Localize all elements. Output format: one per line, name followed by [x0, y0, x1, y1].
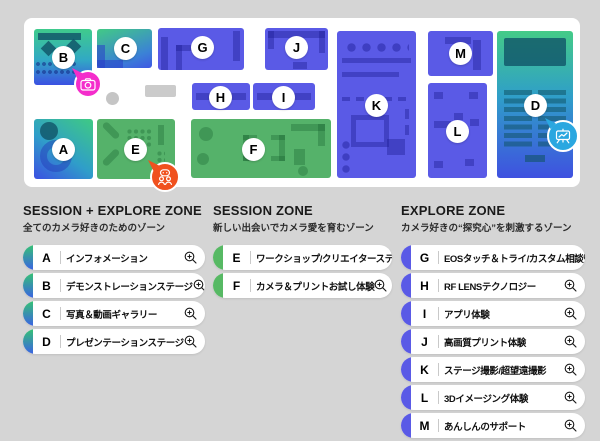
zone-label: RF LENSテクノロジー: [444, 279, 536, 293]
decor-shape: [271, 135, 285, 140]
legend-subtitle: 新しい出会いでカメラ愛を育むゾーン: [213, 223, 392, 234]
decor-shape: [525, 155, 545, 162]
zone-i-letter-badge: I: [272, 86, 295, 109]
divider: [438, 335, 439, 348]
map-structure-rect: [145, 85, 176, 97]
decor-shape: [465, 159, 474, 166]
decor-shape: [97, 60, 123, 68]
zoom-in-icon[interactable]: [564, 335, 577, 348]
divider: [60, 251, 61, 264]
decor-shape: [293, 62, 307, 69]
legend-column-session: SESSION ZONE 新しい出会いでカメラ愛を育むゾーン E ワークショップ…: [213, 204, 392, 301]
legend-item-b[interactable]: B デモンストレーションステージ: [23, 273, 205, 298]
decor-shape: [318, 124, 325, 146]
zoom-in-icon[interactable]: [184, 307, 197, 320]
legend-item-k[interactable]: K ステージ撮影/超望遠撮影: [401, 357, 585, 382]
divider: [438, 419, 439, 432]
zone-color-cap: [23, 329, 33, 354]
zone-k-letter-badge: K: [365, 94, 388, 117]
zone-color-cap: [401, 273, 411, 298]
presentation-marker-icon: [547, 120, 579, 152]
legend-title: SESSION ZONE: [213, 204, 392, 218]
decor-shape: [158, 125, 164, 145]
decor-shape: [342, 141, 352, 177]
zoom-in-icon[interactable]: [564, 279, 577, 292]
decor-shape: [469, 92, 478, 99]
decor-shape: [40, 122, 58, 140]
legend-item-f[interactable]: F カメラ＆プリントお試し体験: [213, 273, 392, 298]
zoom-in-icon[interactable]: [564, 391, 577, 404]
divider: [438, 307, 439, 320]
zone-m-letter-badge: M: [449, 42, 472, 65]
zone-label: ステージ撮影/超望遠撮影: [444, 363, 546, 377]
decor-shape: [319, 31, 325, 53]
zone-h-letter-badge: H: [209, 86, 232, 109]
zone-label: プレゼンテーションステージ: [66, 335, 184, 349]
zone-letter: F: [228, 279, 245, 293]
zone-e-letter-badge: E: [124, 138, 147, 161]
decor-shape: [271, 156, 285, 161]
legend-item-g[interactable]: G EOSタッチ＆トライ/カスタム相談: [401, 245, 585, 270]
zoom-in-icon[interactable]: [193, 279, 205, 292]
camera-marker-icon: [74, 70, 102, 98]
zoom-in-icon[interactable]: [184, 335, 197, 348]
divider: [438, 391, 439, 404]
zone-letter: C: [38, 307, 55, 321]
zone-letter: K: [416, 363, 433, 377]
map-structure-circle: [106, 92, 119, 105]
zoom-in-icon[interactable]: [564, 307, 577, 320]
zone-color-cap: [23, 273, 33, 298]
legend-item-a[interactable]: A インフォメーション: [23, 245, 205, 270]
zone-c-letter-badge: C: [114, 37, 137, 60]
visitors-marker-icon: [150, 162, 180, 192]
divider: [250, 251, 251, 264]
legend-item-h[interactable]: H RF LENSテクノロジー: [401, 273, 585, 298]
zone-letter: I: [416, 307, 433, 321]
decor-shape: [470, 119, 479, 126]
zone-a-letter-badge: A: [52, 138, 75, 161]
zone-d-letter-badge: D: [524, 94, 547, 117]
divider: [60, 307, 61, 320]
zone-letter: L: [416, 391, 433, 405]
divider: [250, 279, 251, 292]
decor-shape: [387, 139, 405, 155]
zone-g-letter-badge: G: [191, 36, 214, 59]
zone-color-cap: [23, 245, 33, 270]
zoom-in-icon[interactable]: [374, 279, 387, 292]
zone-letter: E: [228, 251, 245, 265]
presentation-board-icon: [554, 128, 572, 144]
zone-label: EOSタッチ＆トライ/カスタム相談: [444, 251, 583, 265]
zone-letter: D: [38, 335, 55, 349]
zone-j-letter-badge: J: [285, 36, 308, 59]
decor-shape: [342, 58, 411, 63]
legend-title: SESSION + EXPLORE ZONE: [23, 204, 205, 218]
zone-color-cap: [23, 301, 33, 326]
decor-shape: [298, 166, 308, 176]
zone-label: インフォメーション: [66, 251, 147, 265]
decor-shape: [176, 45, 182, 70]
legend-item-c[interactable]: C 写真＆動画ギャラリー: [23, 301, 205, 326]
zone-label: 高画質プリント体験: [444, 335, 526, 349]
legend-column-explore: EXPLORE ZONE カメラ好きの“探究心”を刺激するゾーン G EOSタッ…: [401, 204, 585, 441]
decor-shape: [347, 43, 409, 53]
camera-icon: [80, 77, 96, 91]
zone-color-cap: [401, 357, 411, 382]
decor-shape: [473, 40, 481, 70]
zone-letter: B: [38, 279, 55, 293]
legend-title: EXPLORE ZONE: [401, 204, 585, 218]
divider: [60, 335, 61, 348]
divider: [60, 279, 61, 292]
zone-letter: J: [416, 335, 433, 349]
decor-shape: [434, 92, 443, 99]
zone-color-cap: [401, 413, 411, 438]
zone-label: 写真＆動画ギャラリー: [66, 307, 157, 321]
legend-subtitle: カメラ好きの“探究心”を刺激するゾーン: [401, 223, 585, 234]
zone-color-cap: [401, 329, 411, 354]
decor-shape: [161, 37, 168, 70]
legend-column-session-explore: SESSION + EXPLORE ZONE 全てのカメラ好きのためのゾーン A…: [23, 204, 205, 357]
zone-color-cap: [401, 245, 411, 270]
legend-item-l[interactable]: L 3Dイメージング体験: [401, 385, 585, 410]
zone-b-letter-badge: B: [52, 46, 75, 69]
decor-stage: [504, 38, 566, 66]
zone-letter: M: [416, 419, 433, 433]
zone-l-letter-badge: L: [446, 120, 469, 143]
zoom-in-icon[interactable]: [184, 251, 197, 264]
floor-map-panel: A B C D E F G H I J K L M: [24, 18, 580, 187]
divider: [438, 363, 439, 376]
zone-color-cap: [213, 273, 223, 298]
decor-shape: [101, 148, 120, 167]
decor-shape: [268, 31, 274, 49]
decor-shape: [197, 153, 209, 165]
decor-shape: [454, 113, 463, 120]
decor-shape: [405, 125, 409, 135]
divider: [438, 279, 439, 292]
decor-shape: [351, 115, 389, 147]
zone-color-cap: [213, 245, 223, 270]
zone-f-letter-badge: F: [242, 138, 265, 161]
legend-item-e[interactable]: E ワークショップ/クリエイターステージ: [213, 245, 392, 270]
decor-shape: [294, 149, 305, 165]
decor-shape: [233, 31, 240, 61]
event-map-page: A B C D E F G H I J K L M: [0, 0, 600, 437]
zone-letter: H: [416, 279, 433, 293]
legend-item-i[interactable]: I アプリ体験: [401, 301, 585, 326]
decor-shape: [199, 127, 213, 141]
zone-label: アプリ体験: [444, 307, 490, 321]
decor-shape: [101, 121, 120, 140]
zoom-in-icon[interactable]: [583, 251, 585, 264]
zone-label: ワークショップ/クリエイターステージ: [256, 251, 392, 265]
legend-subtitle: 全てのカメラ好きのためのゾーン: [23, 223, 205, 234]
decor-shape: [342, 72, 399, 77]
decor-shape: [434, 161, 443, 168]
decor-shape: [405, 109, 409, 119]
divider: [438, 251, 439, 264]
zone-label: あんしんのサポート: [444, 419, 526, 433]
zone-letter: A: [38, 251, 55, 265]
zone-color-cap: [401, 385, 411, 410]
zone-color-cap: [401, 301, 411, 326]
legend-item-m[interactable]: M あんしんのサポート: [401, 413, 585, 438]
visitors-icon: [156, 169, 174, 185]
zoom-in-icon[interactable]: [564, 419, 577, 432]
zone-label: デモンストレーションステージ: [66, 279, 193, 293]
zone-label: 3Dイメージング体験: [444, 391, 528, 405]
zoom-in-icon[interactable]: [564, 363, 577, 376]
legend-item-d[interactable]: D プレゼンテーションステージ: [23, 329, 205, 354]
legend-item-j[interactable]: J 高画質プリント体験: [401, 329, 585, 354]
zone-label: カメラ＆プリントお試し体験: [256, 279, 374, 293]
zone-letter: G: [416, 251, 433, 265]
